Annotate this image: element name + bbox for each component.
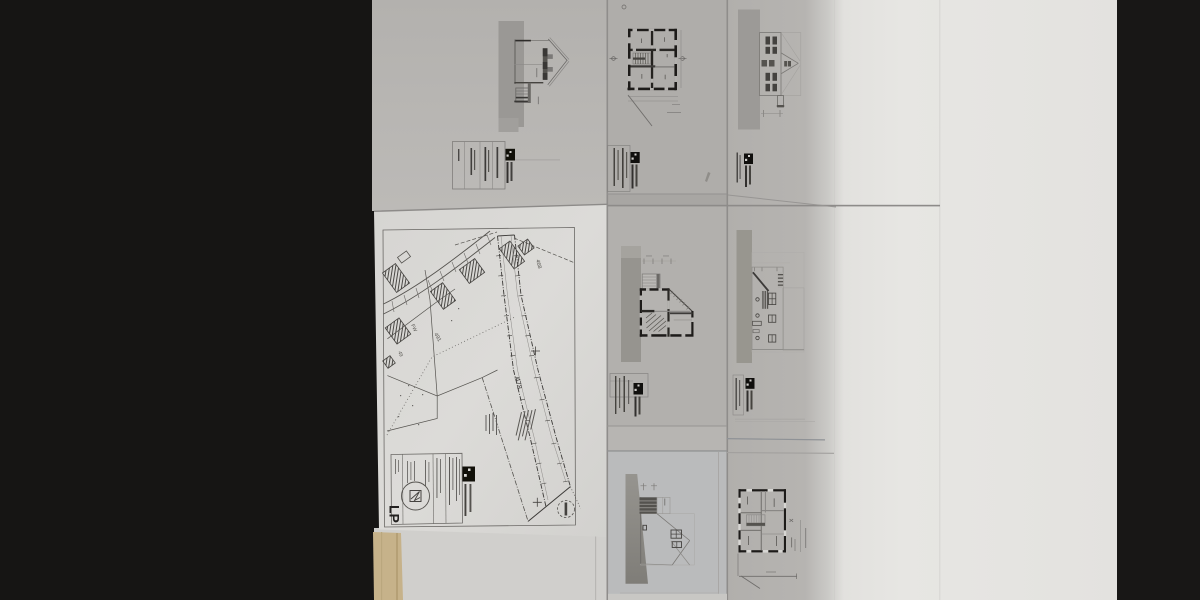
svg-text:LP: LP [387,505,403,523]
